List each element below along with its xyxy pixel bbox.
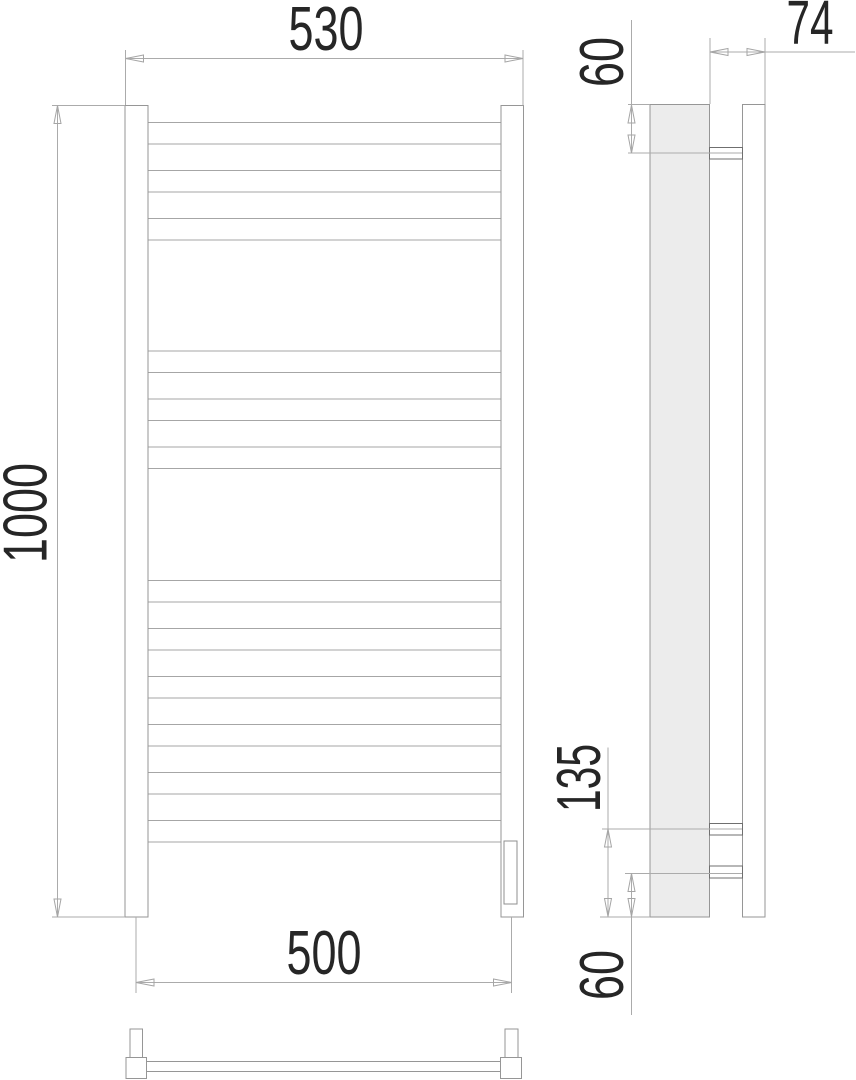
right-post [501, 106, 524, 918]
dimension-width-top: 530 [126, 0, 524, 106]
left-post [125, 106, 148, 918]
dim-60-top-label: 60 [568, 37, 637, 87]
bottom-view-stub-right [505, 1029, 518, 1058]
towel-tube [148, 123, 501, 145]
dim-500-label: 500 [287, 919, 362, 988]
dim-60-bottom-label: 60 [568, 950, 637, 1000]
towel-tube [148, 447, 501, 469]
towel-tube [148, 773, 501, 795]
bottom-view-stub-left [130, 1029, 143, 1058]
bottom-view-tube [147, 1062, 502, 1072]
side-post-profile [650, 105, 710, 918]
tube-rungs [148, 123, 501, 843]
extension-line [52, 106, 125, 918]
bottom-view-block-right [501, 1058, 522, 1079]
towel-tube [148, 677, 501, 699]
wall-rail-strip [743, 105, 766, 918]
extension-line [710, 38, 765, 104]
towel-tube [148, 351, 501, 373]
dim-1000-label: 1000 [0, 463, 61, 563]
bottom-view [126, 1029, 522, 1079]
towel-tube [148, 629, 501, 651]
dim-135-label: 135 [545, 744, 614, 812]
front-view [125, 106, 524, 918]
heating-element-box [504, 841, 517, 904]
wall-bracket-bottom-2 [710, 866, 743, 878]
towel-tube [148, 725, 501, 747]
towel-tube [148, 581, 501, 603]
drawing-canvas: 530 1000 500 60 74 135 [0, 0, 856, 1080]
dim-74-label: 74 [787, 0, 834, 58]
dim-530-label: 530 [289, 0, 364, 64]
towel-tube [148, 399, 501, 421]
towel-tube [148, 219, 501, 241]
bottom-view-block-left [126, 1058, 147, 1079]
towel-tube [148, 821, 501, 843]
dimension-width-bottom: 500 [136, 917, 512, 993]
towel-tube [148, 171, 501, 193]
dimension-depth: 74 [710, 0, 855, 104]
technical-drawing: 530 1000 500 60 74 135 [0, 0, 856, 1080]
dimension-height: 1000 [0, 106, 125, 918]
side-view [650, 105, 765, 918]
